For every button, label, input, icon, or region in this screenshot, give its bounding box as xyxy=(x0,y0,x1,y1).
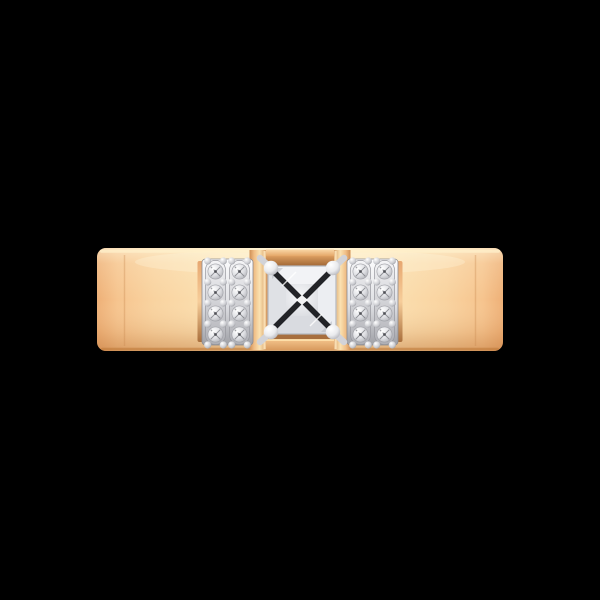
pave-stone-sparkle xyxy=(357,289,359,291)
pave-stone-sparkle xyxy=(357,331,359,333)
pave-stone-culet xyxy=(383,270,386,273)
pave-stone-sparkle xyxy=(381,289,383,291)
pave-bead xyxy=(365,278,372,285)
pave-bead xyxy=(228,278,235,285)
pave-stone-sparkle xyxy=(381,268,383,270)
pave-stone-culet xyxy=(359,291,362,294)
pave-stone-culet xyxy=(238,333,241,336)
pave-stone-culet xyxy=(359,333,362,336)
pave-stone-culet xyxy=(359,270,362,273)
pave-bead xyxy=(204,341,211,348)
pave-stone-sparkle xyxy=(236,310,238,312)
pave-bead xyxy=(349,320,356,327)
pave-bead xyxy=(373,320,380,327)
pave-stone-sparkle xyxy=(212,289,214,291)
pave-stone-sparkle xyxy=(236,289,238,291)
ring-product-image xyxy=(0,0,600,600)
pave-bead xyxy=(220,278,227,285)
pave-stone-sparkle xyxy=(381,310,383,312)
pave-bead xyxy=(220,257,227,264)
pave-bead xyxy=(204,320,211,327)
pave-stone-culet xyxy=(383,291,386,294)
pave-bead xyxy=(244,320,251,327)
pave-bead xyxy=(349,257,356,264)
pave-stone-sparkle xyxy=(357,268,359,270)
pave-stone-culet xyxy=(238,270,241,273)
pave-bead xyxy=(204,278,211,285)
pave-bead xyxy=(389,299,396,306)
prong-top-left xyxy=(264,261,278,275)
pave-bead xyxy=(373,341,380,348)
pave-bead xyxy=(373,278,380,285)
pave-bead xyxy=(228,257,235,264)
pave-bead xyxy=(228,299,235,306)
pave-bead xyxy=(365,257,372,264)
right-pave-panel xyxy=(347,257,403,348)
pave-stone-culet xyxy=(238,312,241,315)
gallery-bottom-bar xyxy=(266,340,334,351)
pave-stone-sparkle xyxy=(357,310,359,312)
pave-bead xyxy=(365,299,372,306)
pave-bead xyxy=(389,278,396,285)
prong-bottom-left xyxy=(264,325,278,339)
pave-stone-culet xyxy=(359,312,362,315)
pave-bead xyxy=(349,341,356,348)
pave-bead xyxy=(228,320,235,327)
pave-bead xyxy=(244,257,251,264)
pave-bead xyxy=(389,257,396,264)
pave-bead xyxy=(220,320,227,327)
pave-bead xyxy=(204,299,211,306)
center-diamond xyxy=(268,266,336,334)
prong-top-right xyxy=(326,261,340,275)
left-pave-panel xyxy=(198,257,254,348)
pave-stone-culet xyxy=(383,333,386,336)
pave-bead xyxy=(204,257,211,264)
pave-bead xyxy=(220,341,227,348)
pave-bead xyxy=(389,320,396,327)
gallery-top-bar xyxy=(266,250,334,257)
pave-bead xyxy=(220,299,227,306)
pave-stone-culet xyxy=(214,270,217,273)
pave-bead xyxy=(389,341,396,348)
pave-bead xyxy=(349,278,356,285)
pave-stone-sparkle xyxy=(212,331,214,333)
pave-stone-culet xyxy=(383,312,386,315)
pave-stone-sparkle xyxy=(236,268,238,270)
pave-bead xyxy=(244,278,251,285)
pave-bead xyxy=(228,341,235,348)
pave-stone-culet xyxy=(238,291,241,294)
pave-bead xyxy=(373,299,380,306)
pave-bead xyxy=(365,341,372,348)
pave-stone-sparkle xyxy=(212,310,214,312)
pave-stone-culet xyxy=(214,291,217,294)
pave-bead xyxy=(244,299,251,306)
prong-bottom-right xyxy=(326,325,340,339)
pave-stone-sparkle xyxy=(381,331,383,333)
pave-bead xyxy=(365,320,372,327)
pave-bead xyxy=(349,299,356,306)
pave-stone-culet xyxy=(214,333,217,336)
gallery-bottom-glint xyxy=(266,339,334,341)
pave-bead xyxy=(373,257,380,264)
pave-stone-culet xyxy=(214,312,217,315)
pave-stone-sparkle xyxy=(236,331,238,333)
pave-bead xyxy=(244,341,251,348)
pave-stone-sparkle xyxy=(212,268,214,270)
